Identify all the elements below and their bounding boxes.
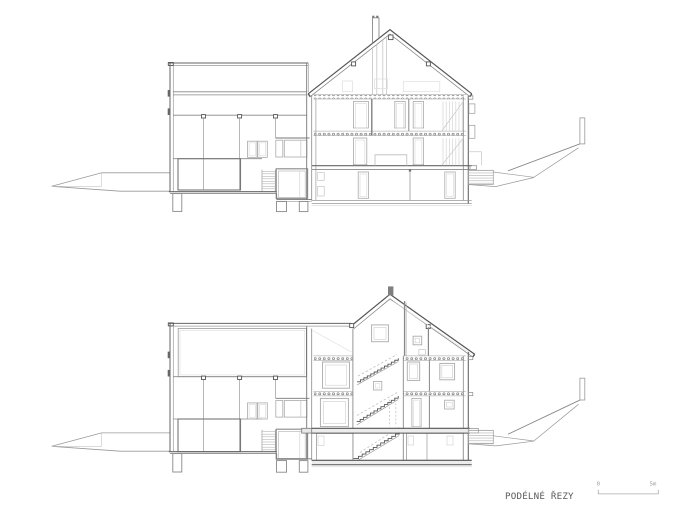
left-rooms: [317, 362, 353, 460]
scale-start-label: 0: [597, 482, 600, 488]
joist-band-attic: [313, 95, 466, 99]
double-door: [248, 141, 268, 157]
flat-roof-wing-bottom: [168, 323, 352, 472]
scale-bar-bracket: [598, 490, 658, 494]
ground-floor-interior: [318, 169, 456, 200]
columns: [204, 118, 276, 190]
gable-house-bottom: [302, 286, 479, 466]
chimney: [388, 286, 393, 295]
stair-elevation: [262, 170, 275, 192]
entry-door-frame: [276, 429, 307, 459]
stair-elevation: [262, 430, 275, 452]
joist-band-floor2: [313, 131, 466, 135]
site-post: [580, 378, 585, 400]
joist-band-floor2: [313, 392, 466, 396]
right-facade-details: [468, 357, 473, 396]
floor1-interior: [353, 138, 463, 166]
window-tick: [168, 108, 170, 115]
handrails-dashed: [357, 355, 399, 453]
footings: [173, 454, 308, 473]
flat-roof-wing-top: [168, 63, 312, 212]
double-door: [248, 403, 268, 419]
terrain-right-top: [468, 118, 585, 187]
purlins: [350, 324, 431, 329]
attic-faint-partitions: [343, 79, 440, 92]
drawing-title: PODÉLNÉ ŘEZY: [505, 490, 574, 502]
stairwell-window: [373, 381, 381, 390]
section-drawing-bottom: [52, 286, 585, 472]
exterior-stair-block: [468, 170, 493, 184]
drawing-sheet: PODÉLNÉ ŘEZY 0 5m: [0, 0, 700, 520]
columns: [204, 380, 276, 451]
lower-room: [178, 159, 241, 190]
window-tick: [168, 352, 170, 359]
attic-stair-faint: [442, 101, 464, 131]
window-tick: [168, 370, 170, 377]
window-tick: [168, 90, 170, 97]
terrain-left-bottom: [52, 433, 170, 451]
terrain-right-bottom: [468, 378, 585, 446]
floor2-interior: [353, 99, 463, 136]
entry-door-frame: [276, 169, 307, 199]
exterior-stair-block: [468, 430, 493, 444]
attic-windows: [372, 325, 426, 355]
entry-panels: [276, 140, 307, 157]
right-facade-details: [468, 96, 481, 170]
longitudinal-sections-drawing: PODÉLNÉ ŘEZY 0 5m: [0, 0, 700, 520]
staircase: [353, 355, 399, 462]
lower-room: [178, 419, 241, 452]
scale-bar: 0 5m: [597, 482, 659, 494]
title-block: PODÉLNÉ ŘEZY 0 5m: [505, 482, 658, 503]
roof-beyond-faint: [313, 331, 352, 353]
eave-fascia: [308, 94, 310, 97]
right-rooms: [406, 360, 463, 460]
footings: [173, 194, 308, 212]
entry-panels: [276, 401, 307, 418]
attic-posts: [405, 301, 429, 356]
terrain-left-top: [52, 173, 170, 191]
section-drawing-top: [52, 16, 585, 212]
eave-fascia: [470, 94, 472, 97]
gable-house-top: [308, 16, 481, 206]
hall-opening: [178, 329, 306, 377]
site-post: [580, 118, 585, 144]
scale-end-label: 5m: [650, 482, 657, 488]
